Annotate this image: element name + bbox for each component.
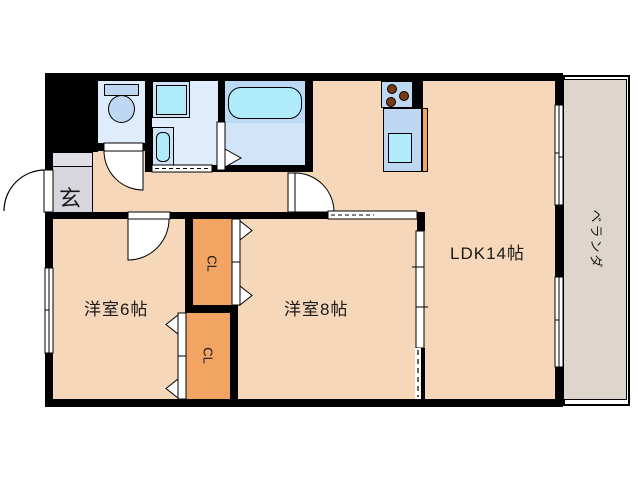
room-label-western8: 洋室8帖 — [284, 295, 348, 320]
wall-hall-south-mid — [170, 212, 328, 219]
closet-lower-label: CL — [201, 343, 216, 369]
stove-burner-1 — [387, 84, 397, 94]
wall-right — [555, 73, 563, 407]
entrance-door-arc — [4, 170, 45, 211]
wall-stove-stub — [413, 81, 423, 108]
wall-toilet-right — [145, 81, 152, 172]
washer-pan-inner — [156, 85, 187, 115]
kitchen-sink — [388, 133, 412, 163]
closet-upper-label: CL — [205, 251, 220, 277]
bathroom-lower — [225, 123, 305, 165]
wall-top — [45, 73, 563, 81]
genkan-label: 玄 — [59, 181, 81, 213]
wall-partition-lower — [421, 348, 425, 399]
wall-hall-south-west — [45, 212, 128, 219]
balcony-label: ベランダ — [588, 210, 607, 268]
wall-under-wetrooms — [145, 165, 313, 172]
wall-bottom — [45, 399, 563, 407]
wall-closet-lower-right — [230, 313, 238, 399]
wall-closet-mid — [185, 305, 238, 313]
wall-closet-upper-left — [185, 219, 193, 305]
wall-corner-room8 — [417, 212, 425, 231]
shoe-cabinet — [52, 152, 93, 167]
structure-block — [45, 81, 98, 152]
stove-burner-2 — [399, 91, 409, 101]
stove-burner-3 — [386, 97, 396, 107]
room-label-western6: 洋室6帖 — [84, 295, 148, 320]
vanity-basin — [156, 132, 170, 162]
floor-plan: 玄 洋室6帖 洋室8帖 LDK14帖 CL CL ベランダ — [0, 0, 638, 480]
toilet-bowl — [108, 95, 135, 123]
bathtub — [228, 87, 302, 119]
wall-wash-bath — [218, 81, 225, 172]
room-label-ldk: LDK14帖 — [450, 239, 525, 264]
wall-bath-right — [305, 81, 313, 172]
wall-toilet-bottom — [98, 143, 152, 151]
kitchen-counter-edge — [422, 108, 428, 172]
